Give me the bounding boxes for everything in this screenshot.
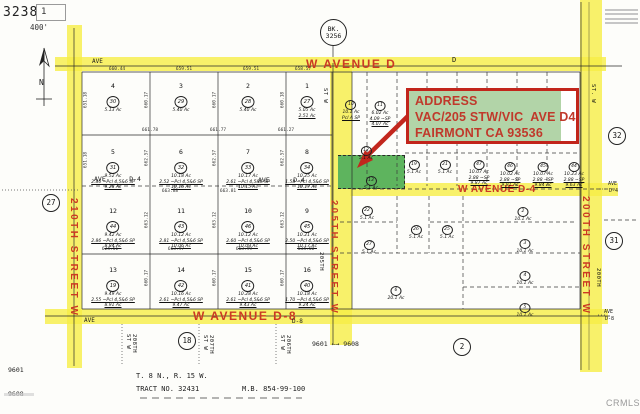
label-200th-street: 200TH STREET W <box>580 196 590 315</box>
book-reference-line2: 3256 <box>321 33 346 40</box>
label-avenue-d4: W AVENUE D-4 <box>458 185 536 195</box>
inset-number-box: 1 <box>36 4 66 21</box>
crmls-watermark: CRMLS <box>606 398 640 408</box>
corner-smudge <box>4 393 34 396</box>
ave-d8-right-label-ave: AVE <box>604 310 613 315</box>
address-line-street: VAC/205 STW/VIC AVE D4 <box>415 109 576 125</box>
assessor-plat-map: 3238 1 400' N BK. 3256 W AVENUE D W AVEN… <box>0 0 640 414</box>
ave-d4-right-label-ave: AVE <box>608 182 617 187</box>
tract-number-label: TRACT NO. 32431 <box>136 385 199 393</box>
book-reference-circle: BK. 3256 <box>320 19 347 46</box>
ave-small-label: AVE <box>92 59 103 65</box>
map-book-label: M.B. 854-99-100 <box>242 385 305 393</box>
callout-arrow-icon <box>357 115 409 168</box>
marker-9601: 9601 <box>8 366 24 374</box>
d8-small-label: D-8 <box>292 319 303 325</box>
ave-d4-left-label-2: AVE D-4 <box>258 177 305 184</box>
label-210th-street: 210TH STREET W <box>68 198 78 317</box>
sheet-number: 3238 <box>3 5 38 20</box>
avenue-d-d-label: D <box>452 57 456 64</box>
label-205th-street: 205TH STREET W <box>329 200 339 315</box>
map-edge-markers-left: 9601 9608 <box>8 350 24 414</box>
ave-d8-right-label-d8: D-8 <box>605 317 614 322</box>
north-arrow-icon <box>36 48 52 106</box>
north-label: N <box>39 78 44 87</box>
scale-label: 400' <box>30 23 48 32</box>
township-range-label: T. 8 N., R. 15 W. <box>136 372 208 380</box>
marker-range: 9601 ←→ 9608 <box>312 340 359 348</box>
ave-d4-right-label-d4: D-4 <box>609 189 618 194</box>
address-line-city: FAIRMONT CA 93536 <box>415 125 576 141</box>
corner-stamp-illegible <box>605 6 638 27</box>
address-callout-box: ADDRESS VAC/205 STW/VIC AVE D4 FAIRMONT … <box>406 88 579 144</box>
label-avenue-d: W AVENUE D <box>306 58 396 70</box>
ave-d8-small-label: AVE <box>84 318 95 324</box>
label-avenue-d8: W AVENUE D-8 <box>193 310 297 322</box>
ave-d4-left-label-1: AVE D-4 <box>94 176 141 183</box>
address-title: ADDRESS <box>415 93 576 109</box>
